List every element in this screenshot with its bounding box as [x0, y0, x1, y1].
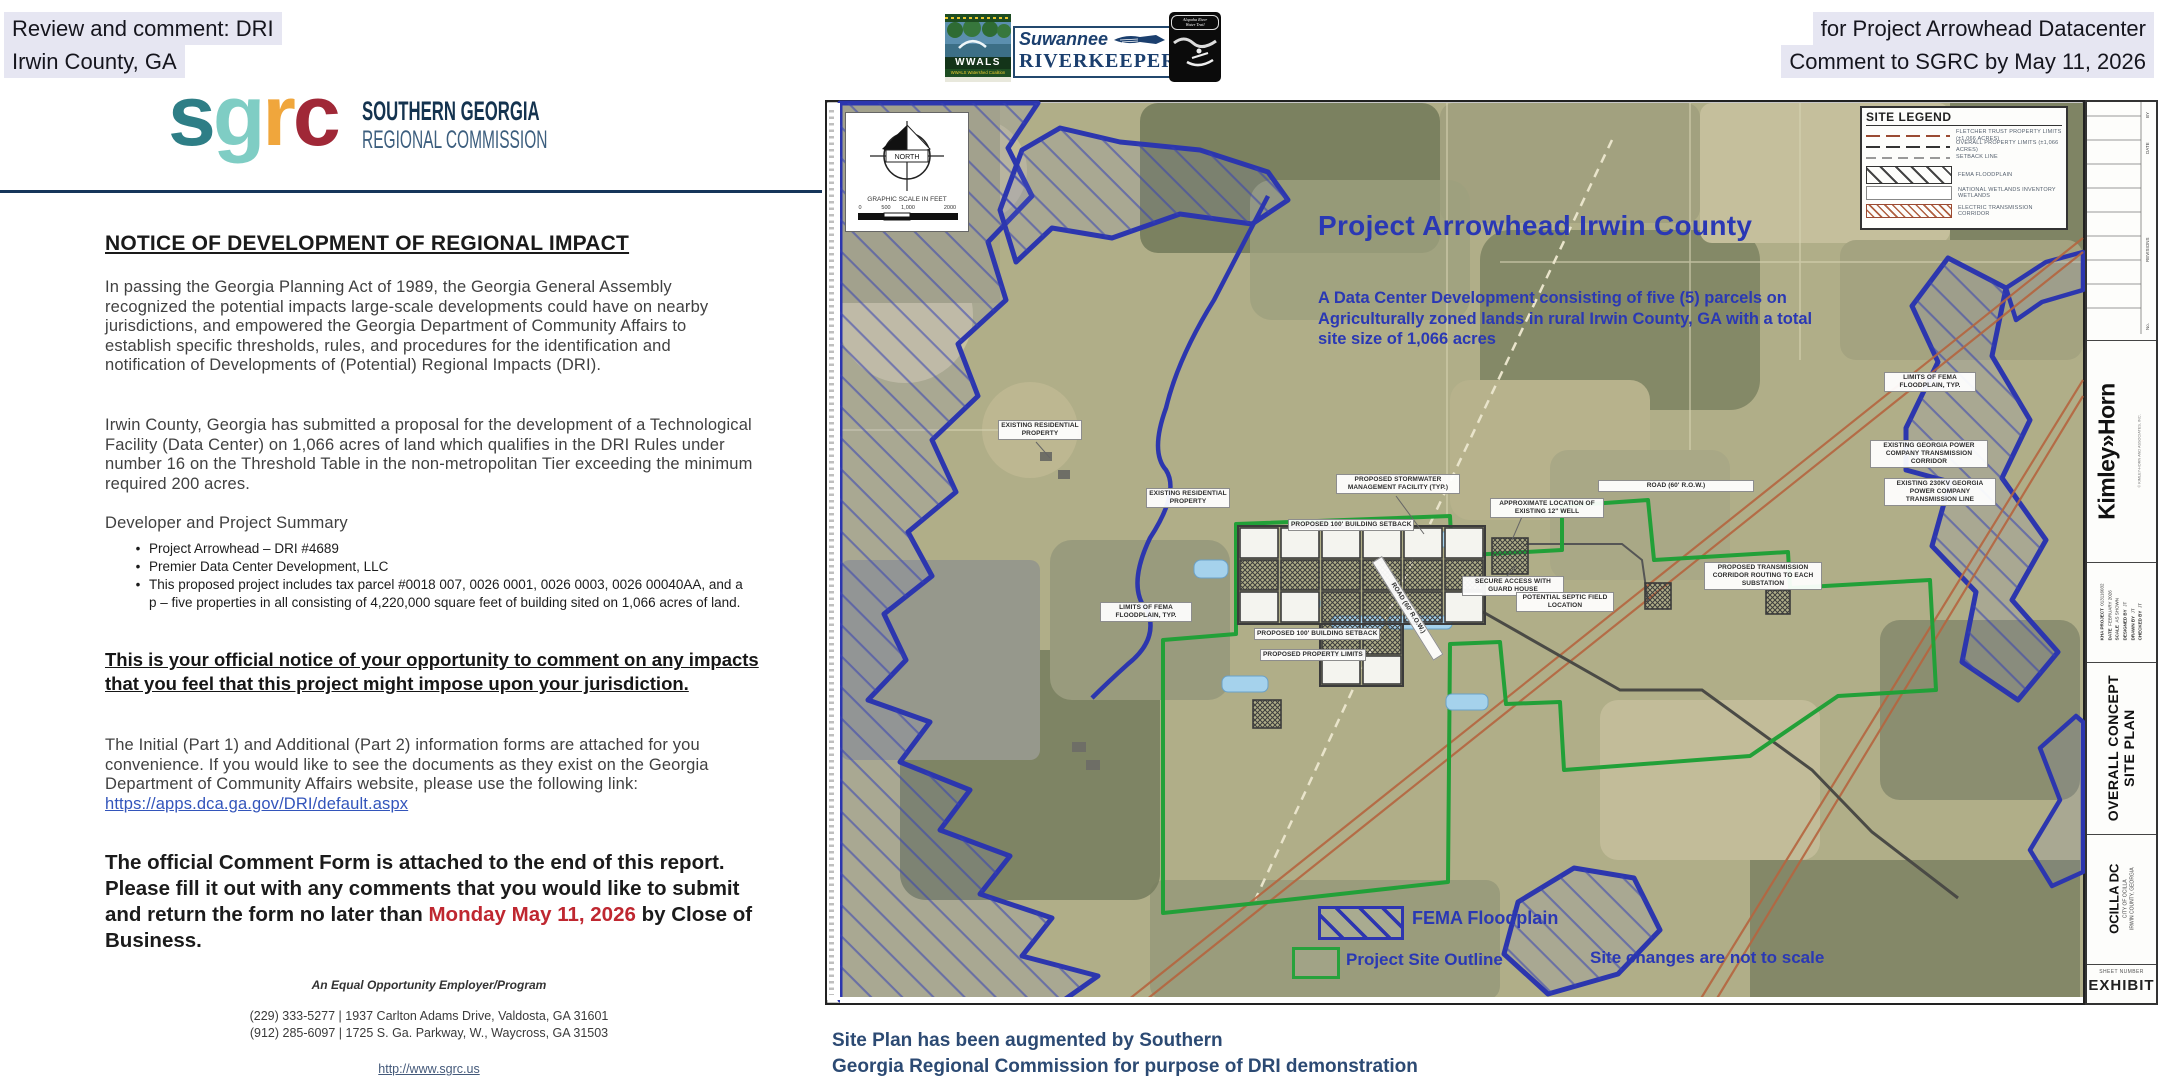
road-label: ROAD (60' R.O.W.)	[1598, 480, 1754, 492]
doc-contact1: (229) 333-5277 | 1937 Carlton Adams Driv…	[105, 1008, 753, 1025]
wwals-name: WWALS	[945, 57, 1011, 69]
map-callout: PROPOSED STORMWATER MANAGEMENT FACILITY …	[1336, 474, 1460, 494]
map-callout: LIMITS OF FEMA FLOODPLAIN, TYP.	[1884, 372, 1976, 392]
header-right-line1: for Project Arrowhead Datacenter	[1813, 12, 2154, 45]
map-callout: EXISTING 230KV GEORGIA POWER COMPANY TRA…	[1884, 478, 1996, 506]
sgrc-letter-r: r	[262, 68, 292, 164]
info-row: CHECKED BY JT	[2137, 584, 2145, 641]
alapaha-badge: Alapaha River Water Trail	[1169, 12, 1221, 82]
dark-dash-line-swatch	[1866, 146, 1950, 148]
riverkeeper-box: Suwannee RIVERKEEPER®	[1013, 26, 1177, 78]
legend-row: OVERALL PROPERTY LIMITS (±1,066 ACRES)	[1866, 141, 2062, 152]
paddler-icon	[1169, 31, 1221, 71]
legend-row: FEMA FLOODPLAIN	[1866, 165, 2062, 185]
dca-link[interactable]: https://apps.dca.ga.gov/DRI/default.aspx	[105, 795, 408, 813]
sgrc-name-line2: REGIONAL COMMISSION	[362, 126, 547, 154]
suwannee-text: Suwannee	[1019, 29, 1108, 50]
doc-forms-text: The Initial (Part 1) and Additional (Par…	[105, 736, 709, 793]
doc-bullets: •Project Arrowhead – DRI #4689 •Premier …	[127, 540, 752, 612]
wwals-base-strip	[945, 77, 1011, 82]
map-caption-line1: Site Plan has been augmented by Southern	[832, 1028, 1418, 1054]
doc-bullet1: Project Arrowhead – DRI #4689	[149, 540, 752, 558]
wwals-top-strip	[945, 14, 1011, 22]
legend-label: NATIONAL WETLANDS INVENTORY WETLANDS	[1958, 187, 2062, 200]
project-site-outline-swatch	[1292, 947, 1340, 979]
info-row: DRAWN BY JT	[2129, 584, 2137, 641]
doc-contacts: (229) 333-5277 | 1937 Carlton Adams Driv…	[105, 1008, 753, 1042]
sheet-title-line2: SITE PLAN	[2122, 675, 2138, 821]
doc-notice: This is your official notice of your opp…	[105, 648, 765, 696]
north-scale-box: NORTH GRAPHIC SCALE IN FEET 0 500 1,000 …	[845, 112, 969, 232]
project-info: KHA PROJECT 013116032 DATE FEBRUARY 2026…	[2087, 562, 2156, 662]
svg-text:500: 500	[881, 205, 890, 211]
sgrc-logo: sgrc	[168, 76, 338, 166]
map-callout: EXISTING RESIDENTIAL PROPERTY	[998, 420, 1082, 440]
map-callout: EXISTING GEORGIA POWER COMPANY TRANSMISS…	[1870, 440, 1988, 468]
wwals-footer: WWALS Watershed Coalition	[945, 69, 1011, 77]
doc-contact2: (912) 285-6097 | 1725 S. Ga. Parkway, W.…	[105, 1025, 753, 1042]
header-right-line2: Comment to SGRC by May 11, 2026	[1781, 45, 2154, 78]
header-divider	[0, 190, 822, 193]
sheet-title: OVERALL CONCEPT SITE PLAN	[2087, 662, 2156, 834]
sheet-number: EXHIBIT	[2087, 977, 2156, 994]
doc-para2: Irwin County, Georgia has submitted a pr…	[105, 416, 753, 494]
map-callout: APPROXIMATE LOCATION OF EXISTING 12" WEL…	[1490, 498, 1604, 518]
map-subtitle: A Data Center Development consisting of …	[1318, 288, 1823, 350]
fema-hatch-swatch	[1866, 166, 1952, 184]
site-legend-title: SITE LEGEND	[1866, 110, 2062, 126]
project-sub2: IRWIN COUNTY, GEORGIA	[2130, 864, 2137, 934]
riverkeeper-text: RIVERKEEPER	[1019, 50, 1177, 72]
sturgeon-icon	[1112, 33, 1168, 47]
red-dash-line-swatch	[1866, 135, 1950, 137]
fema-floodplain-label: FEMA Floodplain	[1412, 908, 1558, 929]
header-left-line2: Irwin County, GA	[4, 45, 185, 78]
sgrc-letter-g: g	[213, 68, 263, 164]
svg-text:2000: 2000	[944, 205, 956, 211]
svg-text:NORTH: NORTH	[895, 154, 920, 161]
legend-label: OVERALL PROPERTY LIMITS (±1,066 ACRES)	[1956, 140, 2062, 153]
bullet-icon: •	[127, 558, 149, 576]
info-row: DATE FEBRUARY 2026	[2106, 584, 2114, 641]
revision-grid: BY DATE REVISIONS No.	[2087, 102, 2156, 340]
doc-title: NOTICE OF DEVELOPMENT OF REGIONAL IMPACT	[105, 232, 629, 256]
sheet-number-box: SHEET NUMBER EXHIBIT	[2087, 964, 2156, 1003]
map-callout: EXISTING RESIDENTIAL PROPERTY	[1146, 488, 1230, 508]
wwals-riverkeeper-banner: WWALS WWALS Watershed Coalition Suwannee…	[945, 12, 1223, 82]
project-name-block: OCILLA DC CITY OF OCILLA IRWIN COUNTY, G…	[2087, 834, 2156, 964]
info-row: KHA PROJECT 013116032	[2099, 584, 2107, 641]
svg-text:DATE: DATE	[2145, 142, 2150, 154]
doc-eoe: An Equal Opportunity Employer/Program	[105, 978, 753, 992]
svg-text:BY: BY	[2145, 112, 2150, 118]
header-left-line1: Review and comment: DRI	[4, 12, 282, 45]
legend-label: FEMA FLOODPLAIN	[1958, 172, 2062, 178]
sheet-title-line1: OVERALL CONCEPT	[2106, 675, 2122, 821]
map-callout: LIMITS OF FEMA FLOODPLAIN, TYP.	[1100, 602, 1192, 622]
svg-text:1,000: 1,000	[901, 205, 915, 211]
gray-dash-line-swatch	[1866, 157, 1950, 159]
sgrc-name-line1: SOUTHERN GEORGIA	[362, 96, 547, 126]
svg-text:No.: No.	[2145, 323, 2150, 330]
header-right: for Project Arrowhead Datacenter Comment…	[1781, 12, 2154, 78]
map-caption: Site Plan has been augmented by Southern…	[832, 1028, 1418, 1080]
doc-bullet3: This proposed project includes tax parce…	[149, 576, 752, 612]
bullet-icon: •	[127, 576, 149, 612]
sgrc-letter-c: c	[293, 68, 338, 164]
revision-table: BY DATE REVISIONS No.	[2087, 102, 2156, 340]
svg-text:GRAPHIC SCALE IN FEET: GRAPHIC SCALE IN FEET	[867, 196, 946, 203]
wwals-logo: WWALS WWALS Watershed Coalition	[945, 14, 1011, 82]
map-callout: PROPOSED PROPERTY LIMITS	[1260, 649, 1366, 661]
legend-row: ELECTRIC TRANSMISSION CORRIDOR	[1866, 203, 2062, 219]
info-row: DESIGNED BY JT	[2122, 584, 2130, 641]
titleblock: BY DATE REVISIONS No. Kimley»Horn © KIML…	[2085, 100, 2158, 1005]
svg-text:REVISIONS: REVISIONS	[2145, 237, 2150, 262]
kimley-horn-note: © KIMLEY-HORN AND ASSOCIATES, INC.	[2127, 340, 2153, 562]
wwals-art	[945, 22, 1011, 58]
project-name: OCILLA DC	[2107, 864, 2122, 934]
doc-comment: The official Comment Form is attached to…	[105, 850, 777, 954]
legend-row: SETBACK LINE	[1866, 152, 2062, 163]
info-row: SCALE AS SHOWN	[2114, 584, 2122, 641]
site-legend-box: SITE LEGEND FLETCHER TRUST PROPERTY LIMI…	[1860, 106, 2068, 230]
north-arrow-icon: NORTH GRAPHIC SCALE IN FEET 0 500 1,000 …	[846, 113, 968, 231]
doc-summary-heading: Developer and Project Summary	[105, 514, 348, 534]
electric-corridor-swatch	[1866, 204, 1952, 218]
doc-bullet2: Premier Data Center Development, LLC	[149, 558, 752, 576]
doc-para1: In passing the Georgia Planning Act of 1…	[105, 278, 753, 376]
badge-line2: Water Trail	[1172, 22, 1218, 27]
sgrc-website-link[interactable]: http://www.sgrc.us	[105, 1062, 753, 1076]
map-callout: POTENTIAL SEPTIC FIELD LOCATION	[1516, 592, 1614, 612]
svg-text:0: 0	[858, 205, 861, 211]
sgrc-letter-s: s	[168, 68, 213, 164]
doc-comment-date: Monday May 11, 2026	[428, 903, 635, 926]
map-caption-line2: Georgia Regional Commission for purpose …	[832, 1054, 1418, 1080]
wetlands-swatch	[1866, 186, 1952, 200]
not-to-scale-note: Site changes are not to scale	[1590, 948, 1824, 968]
map-edge-notes	[829, 110, 834, 995]
sheet-number-label: SHEET NUMBER	[2087, 969, 2156, 975]
page: Review and comment: DRI Irwin County, GA…	[0, 0, 2160, 1080]
legend-label: SETBACK LINE	[1956, 154, 2062, 160]
legend-row: NATIONAL WETLANDS INVENTORY WETLANDS	[1866, 185, 2062, 201]
doc-forms: The Initial (Part 1) and Additional (Par…	[105, 736, 753, 814]
legend-label: ELECTRIC TRANSMISSION CORRIDOR	[1958, 205, 2062, 218]
map-callout: PROPOSED 100' BUILDING SETBACK	[1254, 628, 1380, 640]
map-title: Project Arrowhead Irwin County	[1318, 210, 1752, 242]
map-callout: PROPOSED TRANSMISSION CORRIDOR ROUTING T…	[1704, 562, 1822, 590]
bullet-icon: •	[127, 540, 149, 558]
map-callout: PROPOSED 100' BUILDING SETBACK	[1288, 519, 1414, 531]
fema-floodplain-swatch	[1318, 906, 1404, 940]
project-site-outline-label: Project Site Outline	[1346, 950, 1503, 970]
sgrc-name: SOUTHERN GEORGIA REGIONAL COMMISSION	[362, 96, 661, 154]
